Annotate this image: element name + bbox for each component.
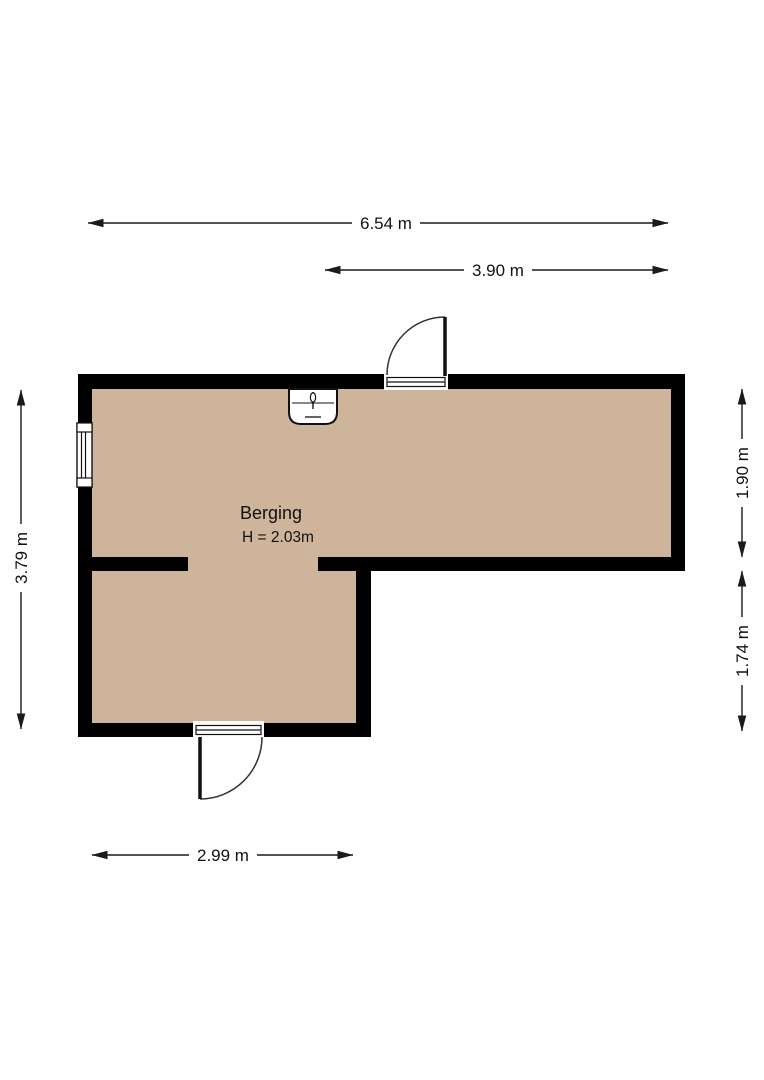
sink-fixture <box>289 389 337 424</box>
window-cap-top <box>77 423 92 432</box>
floor-lower-room <box>92 571 356 723</box>
floorplan-page: 6.54 m 3.90 m 3.79 m 1.90 m 1.74 m 2.99 … <box>0 0 764 1080</box>
dimension-label-bottom: 2.99 m <box>197 846 249 865</box>
door-top-swing-arc <box>387 317 445 375</box>
floor-partition-opening <box>188 557 318 571</box>
dimension-right-lower: 1.74 m <box>731 571 753 731</box>
ceiling-height-label: H = 2.03m <box>242 529 314 546</box>
dimension-label-top-total: 6.54 m <box>360 214 412 233</box>
window-cap-bottom <box>77 478 92 487</box>
window-frame <box>77 423 92 487</box>
dimension-right-upper: 1.90 m <box>731 389 753 557</box>
floor <box>92 389 671 723</box>
door-top <box>384 317 448 390</box>
window-fixture <box>77 423 92 487</box>
door-bottom <box>193 721 264 799</box>
dimension-bottom: 2.99 m <box>92 844 353 865</box>
dimension-label-right-upper: 1.90 m <box>733 447 752 499</box>
dimension-label-top-right: 3.90 m <box>472 261 524 280</box>
sink-faucet-handle <box>310 393 315 402</box>
dimension-top-right: 3.90 m <box>325 259 668 280</box>
dimension-left: 3.79 m <box>10 390 32 729</box>
dimension-label-left: 3.79 m <box>12 532 31 584</box>
room-name-label: Berging <box>240 503 302 523</box>
door-bottom-swing-arc <box>200 737 262 799</box>
dimension-label-right-lower: 1.74 m <box>733 625 752 677</box>
dimension-top-total: 6.54 m <box>88 212 668 233</box>
floor-upper-room <box>92 389 671 557</box>
floorplan-drawing: 6.54 m 3.90 m 3.79 m 1.90 m 1.74 m 2.99 … <box>0 0 764 1080</box>
